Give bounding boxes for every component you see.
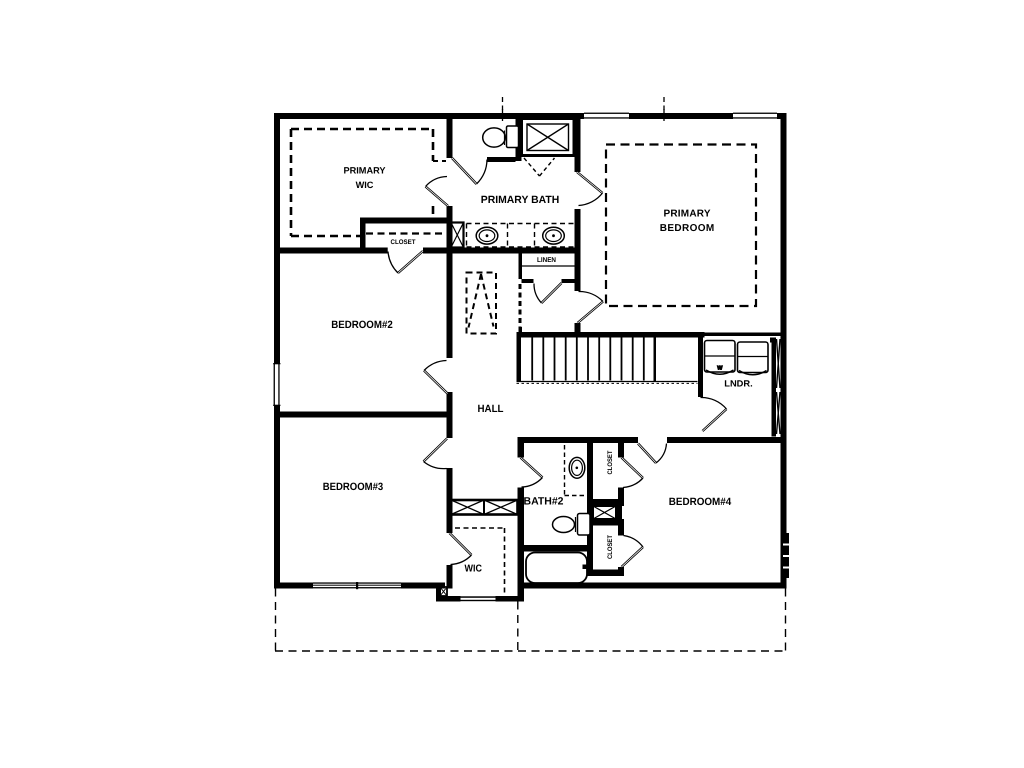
svg-text:W: W <box>717 366 723 372</box>
svg-text:CLOSET: CLOSET <box>391 239 416 246</box>
svg-text:PRIMARY: PRIMARY <box>664 209 711 220</box>
svg-text:CLOSET: CLOSET <box>607 535 614 559</box>
svg-text:LINEN: LINEN <box>537 257 556 264</box>
svg-text:HALL: HALL <box>478 403 504 415</box>
svg-text:BEDROOM#2: BEDROOM#2 <box>331 319 393 331</box>
svg-text:BATH#2: BATH#2 <box>524 496 564 508</box>
svg-text:LNDR.: LNDR. <box>724 379 753 389</box>
svg-text:CLOSET: CLOSET <box>607 451 614 475</box>
svg-text:BEDROOM#4: BEDROOM#4 <box>669 496 732 508</box>
svg-text:PRIMARY: PRIMARY <box>343 166 385 176</box>
svg-text:PRIMARY BATH: PRIMARY BATH <box>481 194 560 206</box>
svg-text:WIC: WIC <box>465 564 483 575</box>
svg-text:WIC: WIC <box>356 180 374 190</box>
svg-text:BEDROOM: BEDROOM <box>660 223 715 234</box>
svg-text:BEDROOM#3: BEDROOM#3 <box>323 481 384 493</box>
